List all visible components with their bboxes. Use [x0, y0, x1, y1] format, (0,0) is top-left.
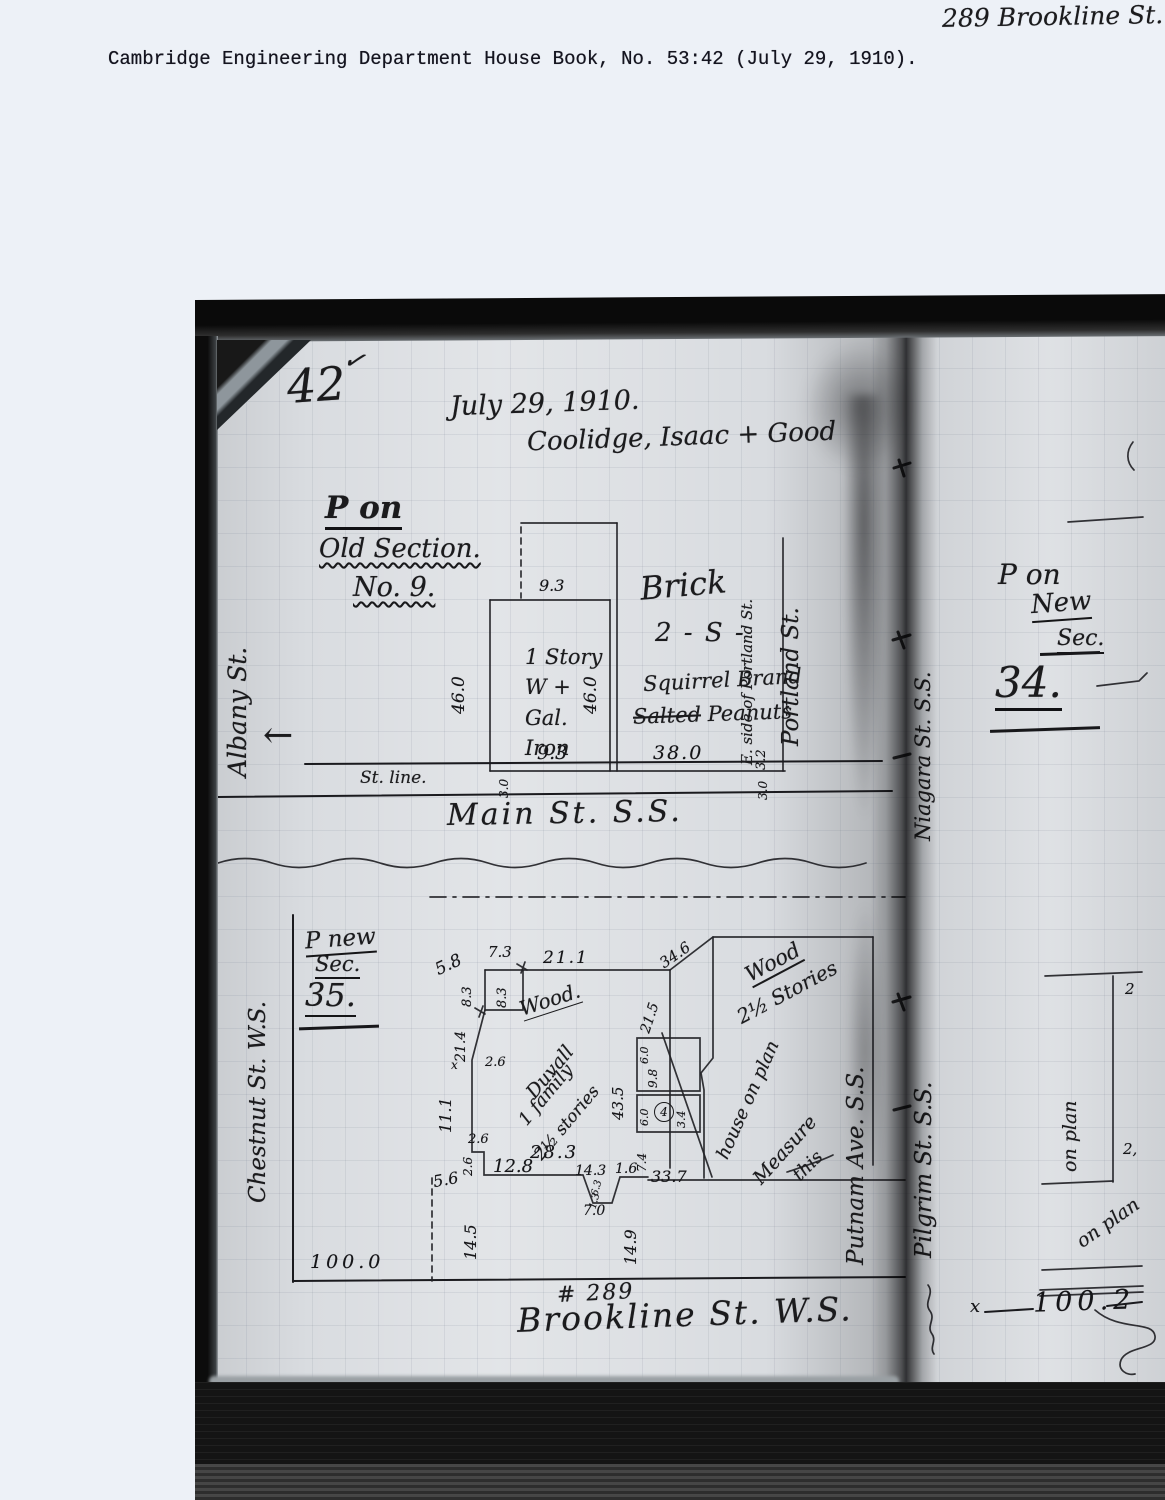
- street-portland: Portland St.: [780, 526, 803, 746]
- street-portland-note: E. side of Portland St.: [740, 500, 755, 765]
- dim-offset1: 3.0: [498, 770, 510, 798]
- mark-2-b: 2,: [1123, 1140, 1137, 1158]
- dim-width-top: 9.3: [539, 576, 564, 595]
- dim-100-2: 100.2: [1032, 1284, 1135, 1319]
- building2-stories: 2 - S -: [655, 618, 746, 648]
- dim-depth-left: 46.0: [451, 642, 468, 714]
- street-chestnut: Chestnut St. W.S.: [247, 918, 270, 1203]
- x-mark-lower: x: [970, 1296, 980, 1317]
- dim-2-6-c: 2.6: [462, 1150, 474, 1176]
- dim-14-5: 14.5: [463, 1213, 479, 1260]
- dim-depth-right: 46.0: [583, 642, 600, 714]
- dim-21-1: 21.1: [543, 948, 589, 968]
- section-title-p-on: P on: [325, 490, 402, 530]
- dim-33-7: 33.7: [651, 1167, 687, 1186]
- corner-address-note: 289 Brookline St.: [942, 0, 1164, 33]
- dim-11-1: 11.1: [438, 1088, 454, 1133]
- dim-8-3-inner: 8.3: [496, 976, 509, 1008]
- survey-date: July 29, 1910.: [450, 385, 640, 423]
- dim-brick-width: 38.0: [653, 742, 703, 764]
- scanned-document: Cambridge Engineering Department House B…: [0, 0, 1165, 1500]
- lower-title-35: 35.: [305, 976, 356, 1017]
- lower-title-sec: Sec.: [315, 952, 360, 979]
- direction-arrow: ←: [263, 715, 293, 756]
- section-title-old-section: Old Section.: [319, 534, 481, 564]
- right-title-new: New: [1030, 586, 1093, 623]
- mark-2-a: 2: [1125, 980, 1135, 998]
- x-tick-mark: x: [451, 1058, 458, 1072]
- street-pilgrim: Pilgrim St. S.S.: [913, 910, 936, 1258]
- photo-top-edge: [195, 294, 1165, 342]
- book-photo: 42 ✓ July 29, 1910. Coolidge, Isaac + Go…: [195, 300, 1165, 1500]
- typed-caption: Cambridge Engineering Department House B…: [108, 48, 918, 70]
- sign-word-struck: Salted: [633, 702, 702, 728]
- street-line-label: St. line.: [360, 768, 427, 788]
- photo-left-edge: [195, 336, 218, 1386]
- street-niagara: Niagara St. S.S.: [913, 476, 934, 841]
- page-number: 42: [285, 356, 347, 414]
- dim-9-8: 9.8: [647, 1060, 659, 1088]
- dim-14-9: 14.9: [623, 1213, 639, 1265]
- dim-3-4: 3.4: [676, 1102, 687, 1128]
- dim-100-0: 100.0: [310, 1251, 384, 1273]
- dim-8-3-outer: 8.3: [461, 973, 474, 1007]
- street-albany: Albany St.: [225, 562, 250, 777]
- dim-7-0: 7.0: [583, 1203, 605, 1219]
- dim-28-3: 28.3: [530, 1142, 578, 1163]
- note-on-plan-1: on plan: [1061, 1012, 1080, 1172]
- dim-width-bottom: 9.3: [537, 742, 567, 764]
- right-title-34: 34.: [995, 658, 1062, 711]
- dim-2-6-a: 2.6: [485, 1055, 506, 1070]
- dim-offset3: 3.0: [757, 774, 769, 800]
- dim-1-6: 1.6: [615, 1161, 637, 1177]
- street-putnam: Putnam Ave. S.S.: [845, 920, 868, 1265]
- dim-43-5: 43.5: [611, 1070, 626, 1120]
- circled-number: 4: [654, 1102, 674, 1122]
- dim-6-0-b: 6.0: [639, 1102, 650, 1126]
- table-surface: [195, 1464, 1165, 1500]
- dim-14-3: 14.3: [575, 1163, 606, 1179]
- right-title-p-on: P on: [998, 558, 1061, 591]
- right-title-sec: Sec.: [1057, 626, 1104, 654]
- dim-7-3: 7.3: [488, 943, 512, 961]
- dim-21-4: 21.4: [454, 1010, 468, 1062]
- dim-2-6-b: 2.6: [468, 1132, 489, 1147]
- dim-offset2: 3.2: [755, 740, 768, 770]
- dim-7-4: 7.4: [636, 1144, 648, 1172]
- dim-12-8: 12.8: [493, 1156, 533, 1177]
- street-main: Main St. S.S.: [447, 794, 683, 833]
- building2-material: Brick: [639, 562, 728, 607]
- section-title-no-9: No. 9.: [353, 572, 435, 603]
- illegible-scribble: [928, 1285, 934, 1354]
- flourish-scribble: [1095, 1310, 1155, 1374]
